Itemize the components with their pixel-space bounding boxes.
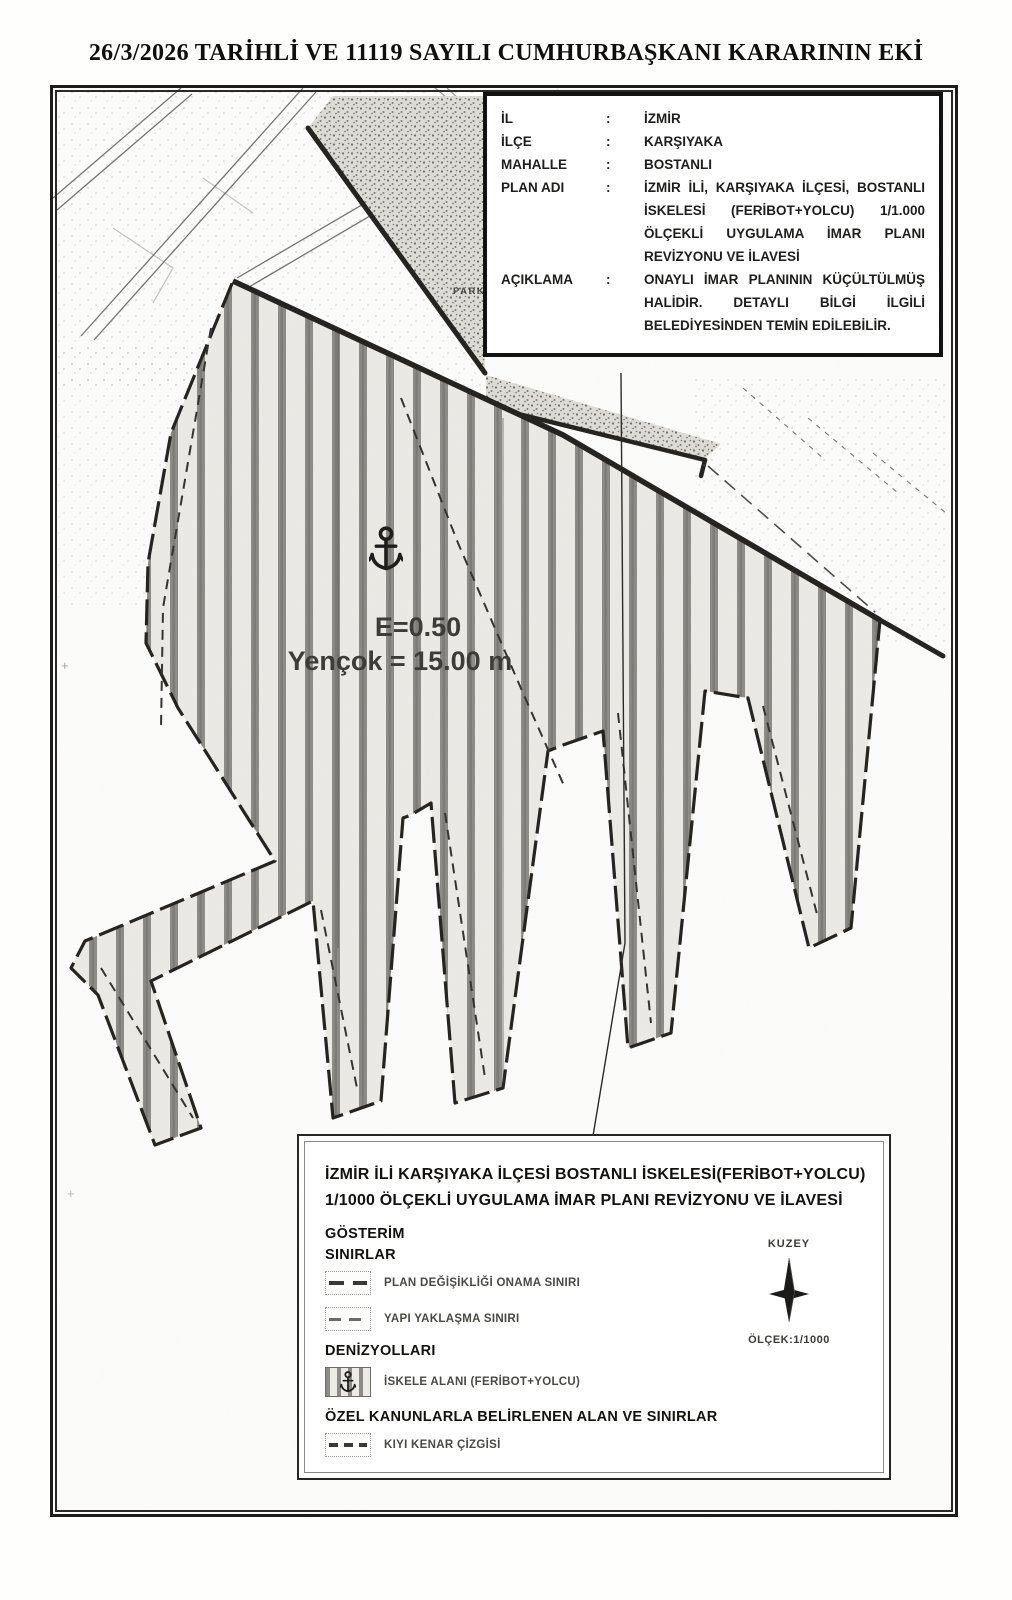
info-value-line: İSKELESİ (FERİBOT+YOLCU) 1/1.000 [644, 199, 925, 222]
legend-box: İZMİR İLİ KARŞIYAKA İLÇESİ BOSTANLI İSKE… [297, 1134, 891, 1480]
legend-item-label: YAPI YAKLAŞMA SINIRI [384, 1313, 520, 1325]
info-separator: : [606, 130, 644, 153]
info-separator: : [606, 268, 644, 291]
legend-section-ozel-kanunlar: ÖZEL KANUNLARLA BELİRLENEN ALAN VE SINIR… [325, 1409, 739, 1425]
info-value-line: KARŞIYAKA [644, 130, 925, 153]
legend-item-kiyi-kenar: KIYI KENAR ÇİZGİSİ [325, 1433, 739, 1457]
info-label: AÇIKLAMA [501, 268, 606, 291]
info-separator: : [606, 107, 644, 130]
legend-heading-gosterim: GÖSTERİM [325, 1226, 739, 1242]
document-page: 26/3/2026 TARİHLİ VE 11119 SAYILI CUMHUR… [0, 0, 1012, 1600]
north-label: KUZEY [729, 1238, 849, 1250]
info-value-line: İZMİR [644, 107, 925, 130]
dash-dash-line-swatch [325, 1433, 371, 1457]
plan-map: PARK E=0.50 Yençok = 15.00 m + + İL : İZ… [50, 85, 958, 1517]
info-value-line: ONAYLI İMAR PLANININ KÜÇÜLTÜLMÜŞ [644, 268, 925, 291]
light-dashed-line-swatch [325, 1307, 371, 1331]
hatch-anchor-swatch [325, 1367, 371, 1397]
compass-block: KUZEY ÖLÇEK:1/1000 [729, 1238, 849, 1346]
legend-title-line1: İZMİR İLİ KARŞIYAKA İLÇESİ BOSTANLI İSKE… [325, 1162, 739, 1188]
compass-star-icon [763, 1254, 815, 1330]
info-value-line: ÖLÇEKLİ UYGULAMA İMAR PLANI [644, 222, 925, 245]
legend-title: İZMİR İLİ KARŞIYAKA İLÇESİ BOSTANLI İSKE… [325, 1162, 739, 1214]
plan-info-box: İL : İZMİR İLÇE : KARŞIYAKA MAHALLE : BO… [483, 92, 943, 357]
info-value-line: HALİDİR. DETAYLI BİLGİ İLGİLİ [644, 291, 925, 314]
info-label: İL [501, 107, 606, 130]
info-value-line: BOSTANLI [644, 153, 925, 176]
legend-item-label: KIYI KENAR ÇİZGİSİ [384, 1439, 501, 1451]
info-separator: : [606, 153, 644, 176]
info-row-plan-adi: PLAN ADI : İZMİR İLİ, KARŞIYAKA İLÇESİ, … [501, 176, 925, 268]
legend-title-line2: 1/1000 ÖLÇEKLİ UYGULAMA İMAR PLANI REVİZ… [325, 1188, 739, 1214]
legend-item-onama-siniri: PLAN DEĞİŞİKLİĞİ ONAMA SINIRI [325, 1271, 739, 1295]
legend-item-label: İSKELE ALANI (FERİBOT+YOLCU) [384, 1376, 580, 1388]
info-value-line: İZMİR İLİ, KARŞIYAKA İLÇESİ, BOSTANLI [644, 176, 925, 199]
info-label: İLÇE [501, 130, 606, 153]
anchor-icon [340, 1370, 356, 1394]
bold-dashed-line-swatch [325, 1271, 371, 1295]
info-row-ilce: İLÇE : KARŞIYAKA [501, 130, 925, 153]
legend-item-iskele-alani: İSKELE ALANI (FERİBOT+YOLCU) [325, 1367, 739, 1397]
info-row-il: İL : İZMİR [501, 107, 925, 130]
legend-section-denizyollari: DENİZYOLLARI [325, 1343, 739, 1359]
legend-section-sinirlar: SINIRLAR [325, 1247, 739, 1263]
info-row-mahalle: MAHALLE : BOSTANLI [501, 153, 925, 176]
info-value-line: BELEDİYESİNDEN TEMİN EDİLEBİLİR. [644, 314, 925, 337]
info-separator: : [606, 176, 644, 199]
legend-item-yaklasma-siniri: YAPI YAKLAŞMA SINIRI [325, 1307, 739, 1331]
info-label: MAHALLE [501, 153, 606, 176]
scale-label: ÖLÇEK:1/1000 [729, 1334, 849, 1346]
info-label: PLAN ADI [501, 176, 606, 199]
info-row-aciklama: AÇIKLAMA : ONAYLI İMAR PLANININ KÜÇÜLTÜL… [501, 268, 925, 337]
info-value-line: REVİZYONU VE İLAVESİ [644, 245, 925, 268]
document-title: 26/3/2026 TARİHLİ VE 11119 SAYILI CUMHUR… [0, 40, 1012, 67]
legend-item-label: PLAN DEĞİŞİKLİĞİ ONAMA SINIRI [384, 1277, 580, 1289]
